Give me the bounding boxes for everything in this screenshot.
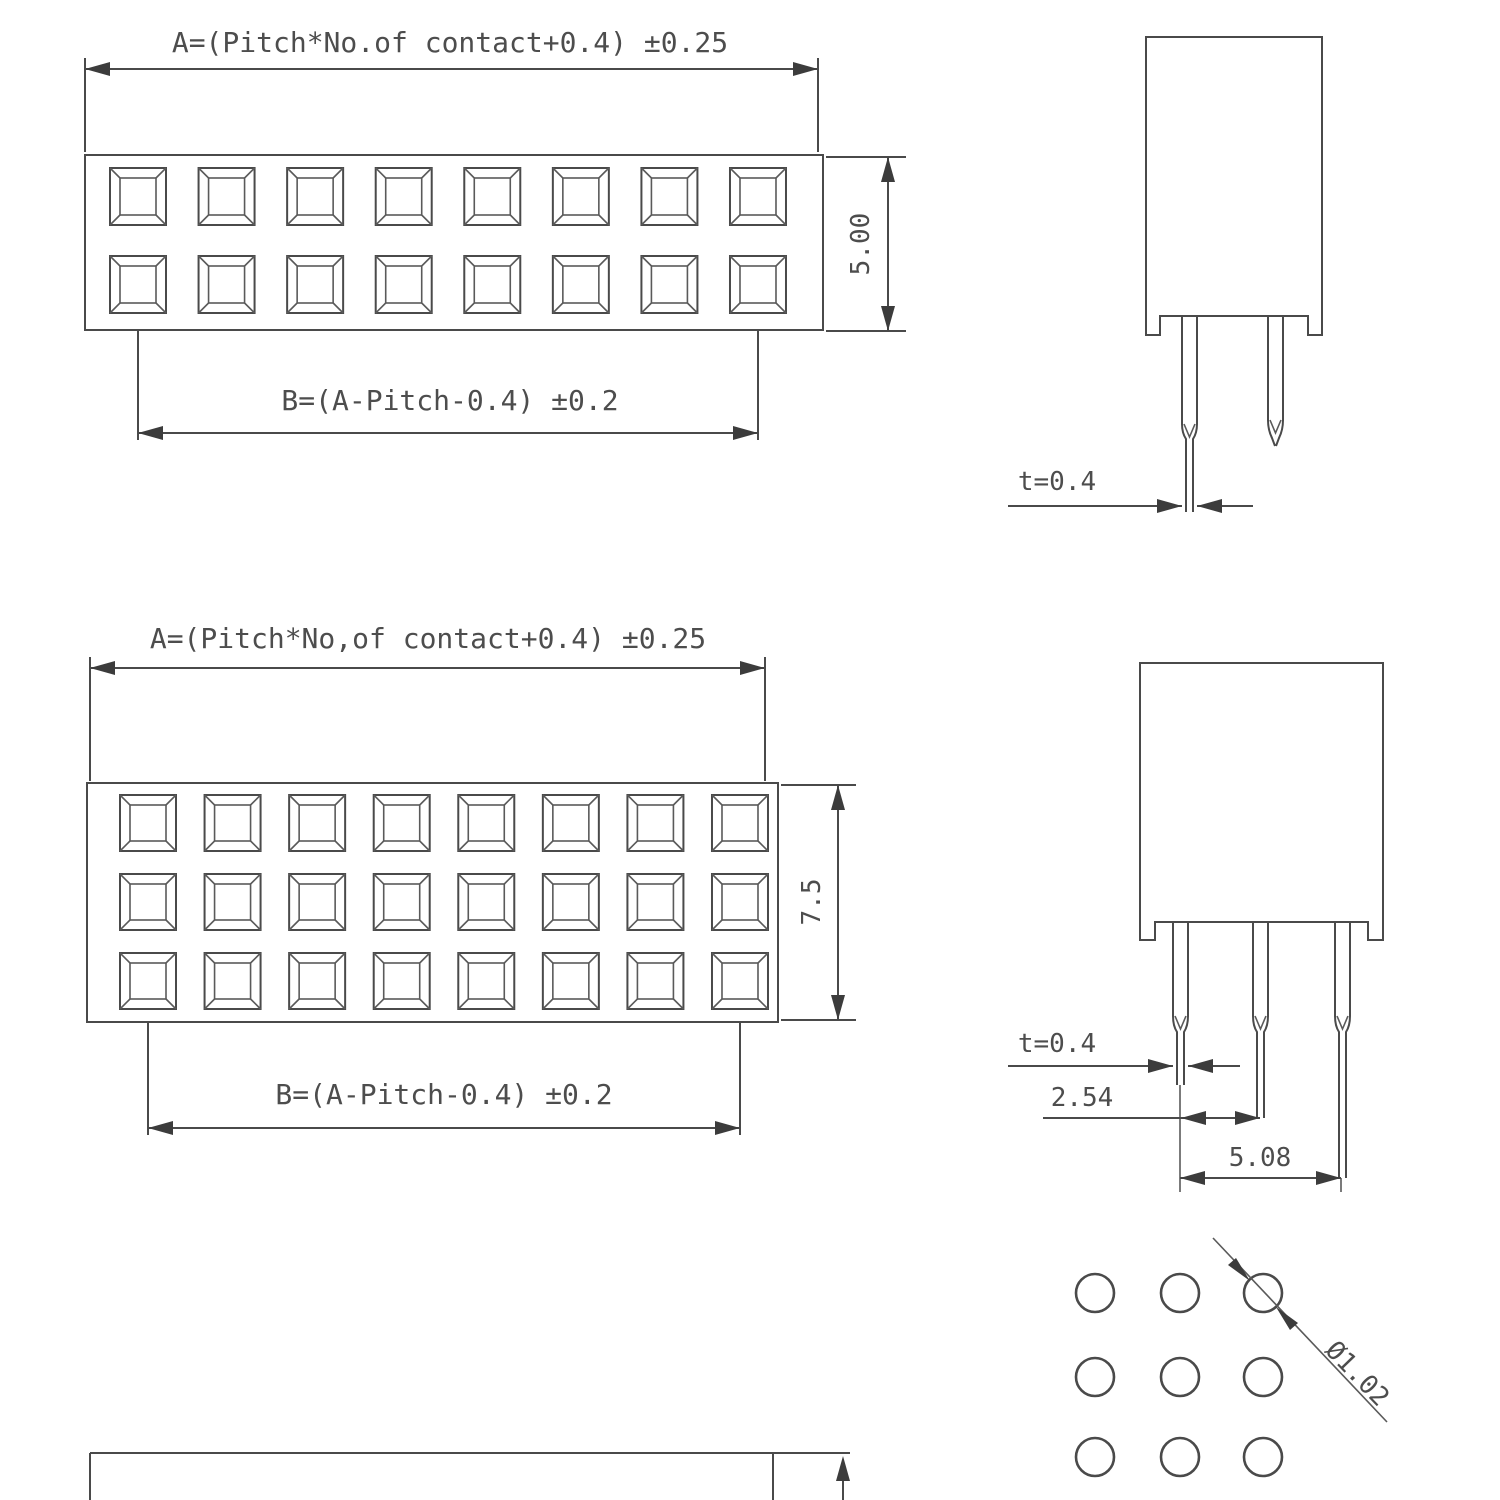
socket-bevel	[458, 999, 468, 1009]
socket-bevel	[627, 999, 637, 1009]
socket-bevel	[120, 953, 130, 963]
pin-group	[1173, 922, 1350, 1178]
socket-bevel	[627, 874, 637, 884]
socket-inner	[553, 884, 589, 920]
socket-bevel	[376, 303, 386, 313]
socket-bevel	[199, 303, 209, 313]
socket-bevel	[245, 256, 255, 266]
header-body-2row	[85, 155, 823, 330]
pin	[1268, 316, 1275, 446]
pin	[1184, 922, 1188, 1085]
socket-bevel	[333, 168, 343, 178]
socket-bevel	[687, 168, 697, 178]
pin-tip-mark	[1175, 1016, 1186, 1029]
socket-bevel	[510, 168, 520, 178]
thickness-mid-label: t=0.4	[1018, 1029, 1096, 1059]
pin-tip-mark	[1255, 1016, 1266, 1029]
socket-bevel	[251, 953, 261, 963]
socket-inner	[740, 178, 776, 215]
socket-inner	[722, 805, 758, 841]
socket-bevel	[374, 999, 384, 1009]
socket-inner	[384, 805, 420, 841]
socket-bevel	[333, 303, 343, 313]
socket-bevel	[289, 953, 299, 963]
socket-bevel	[458, 841, 468, 851]
socket-bevel	[420, 874, 430, 884]
socket-inner	[120, 178, 156, 215]
front-view-3row: A=(Pitch*No,of contact+0.4) ±0.25 7.5 B=…	[87, 622, 856, 1135]
socket-bevel	[599, 303, 609, 313]
socket-bevel	[376, 215, 386, 225]
socket-bevel	[335, 795, 345, 805]
socket-bevel	[289, 999, 299, 1009]
socket-bevel	[464, 168, 474, 178]
arrowhead	[1180, 1171, 1205, 1185]
socket-bevel	[205, 841, 215, 851]
socket-bevel	[687, 215, 697, 225]
socket-inner	[474, 266, 510, 303]
socket-bevel	[641, 215, 651, 225]
socket-inner	[215, 884, 251, 920]
socket-bevel	[335, 874, 345, 884]
arrowhead	[1228, 1258, 1250, 1281]
pin	[1173, 922, 1177, 1085]
socket-bevel	[758, 999, 768, 1009]
side-view-3pin: t=0.4 2.54 5.08	[1008, 663, 1383, 1192]
socket-bevel	[420, 999, 430, 1009]
socket-bevel	[758, 874, 768, 884]
socket-bevel	[156, 256, 166, 266]
dim-height-top-label: 5.00	[846, 213, 876, 276]
socket-bevel	[333, 215, 343, 225]
socket-inner	[637, 884, 673, 920]
socket-bevel	[458, 920, 468, 930]
socket-inner	[299, 805, 335, 841]
socket-bevel	[287, 303, 297, 313]
socket-bevel	[730, 303, 740, 313]
socket-bevel	[205, 920, 215, 930]
socket-bevel	[110, 215, 120, 225]
socket-bevel	[287, 215, 297, 225]
socket-inner	[297, 266, 333, 303]
dim-b-mid-label: B=(A-Pitch-0.4) ±0.2	[275, 1078, 612, 1111]
pin	[1335, 922, 1339, 1178]
socket-bevel	[510, 256, 520, 266]
socket-bevel	[776, 303, 786, 313]
socket-bevel	[374, 920, 384, 930]
socket-inner	[722, 963, 758, 999]
socket-inner	[386, 266, 422, 303]
socket-bevel	[199, 168, 209, 178]
socket-bevel	[458, 795, 468, 805]
socket-bevel	[543, 920, 553, 930]
side-body-outline	[1140, 663, 1383, 940]
pin-tip-mark	[1270, 420, 1281, 433]
arrowhead	[831, 785, 845, 810]
socket-bevel	[599, 168, 609, 178]
socket-bevel	[712, 874, 722, 884]
dim-height-mid-label: 7.5	[797, 879, 827, 926]
dual-pitch-dim-label: 5.08	[1229, 1143, 1292, 1173]
side-view-2pin: t=0.4	[1008, 37, 1322, 513]
socket-bevel	[464, 256, 474, 266]
socket-inner	[130, 963, 166, 999]
pin	[1346, 922, 1350, 1178]
socket-bevel	[251, 841, 261, 851]
socket-bevel	[589, 874, 599, 884]
thickness-top-label: t=0.4	[1018, 467, 1096, 497]
pin-hole	[1076, 1358, 1114, 1396]
socket-bevel	[251, 795, 261, 805]
socket-bevel	[205, 999, 215, 1009]
socket-bevel	[156, 303, 166, 313]
pin-hole	[1244, 1438, 1282, 1476]
arrowhead	[1188, 1059, 1213, 1073]
socket-bevel	[110, 303, 120, 313]
socket-bevel	[420, 795, 430, 805]
socket-bevel	[589, 999, 599, 1009]
pin-hole	[1076, 1274, 1114, 1312]
socket-inner	[384, 963, 420, 999]
socket-bevel	[687, 256, 697, 266]
socket-bevel	[156, 168, 166, 178]
socket-bevel	[251, 920, 261, 930]
socket-bevel	[504, 953, 514, 963]
socket-bevel	[553, 168, 563, 178]
socket-bevel	[730, 256, 740, 266]
pin	[1182, 316, 1186, 512]
arrowhead	[1316, 1171, 1341, 1185]
arrowhead	[90, 661, 115, 675]
socket-bevel	[776, 256, 786, 266]
pin-hole	[1161, 1438, 1199, 1476]
socket-bevel	[712, 795, 722, 805]
socket-bevel	[712, 841, 722, 851]
socket-bevel	[687, 303, 697, 313]
socket-bevel	[458, 953, 468, 963]
socket-bevel	[673, 874, 683, 884]
socket-bevel	[166, 953, 176, 963]
socket-inner	[130, 884, 166, 920]
pin-hole	[1161, 1274, 1199, 1312]
socket-inner	[553, 963, 589, 999]
socket-inner	[637, 963, 673, 999]
connector-dimension-drawing: A=(Pitch*No.of contact+0.4) ±0.25 5.00 B…	[0, 0, 1500, 1500]
socket-bevel	[374, 874, 384, 884]
socket-bevel	[543, 841, 553, 851]
socket-inner	[722, 884, 758, 920]
socket-bevel	[422, 256, 432, 266]
arrowhead	[1197, 499, 1222, 513]
dim-a-mid-label: A=(Pitch*No,of contact+0.4) ±0.25	[150, 622, 706, 655]
socket-bevel	[553, 303, 563, 313]
pin	[1193, 316, 1197, 512]
front-view-2row: A=(Pitch*No.of contact+0.4) ±0.25 5.00 B…	[85, 26, 906, 440]
socket-bevel	[758, 953, 768, 963]
socket-bevel	[205, 953, 215, 963]
arrowhead	[831, 995, 845, 1020]
socket-bevel	[712, 920, 722, 930]
socket-inner	[468, 884, 504, 920]
socket-bevel	[420, 920, 430, 930]
arrowhead	[836, 1456, 850, 1481]
socket-bevel	[758, 795, 768, 805]
socket-bevel	[504, 920, 514, 930]
arrowhead	[148, 1121, 173, 1135]
socket-bevel	[673, 953, 683, 963]
socket-bevel	[504, 874, 514, 884]
socket-bevel	[166, 874, 176, 884]
socket-bevel	[289, 795, 299, 805]
socket-bevel	[758, 841, 768, 851]
socket-bevel	[333, 256, 343, 266]
socket-inner	[468, 805, 504, 841]
arrowhead	[740, 661, 765, 675]
socket-bevel	[120, 920, 130, 930]
socket-bevel	[376, 256, 386, 266]
socket-bevel	[287, 168, 297, 178]
socket-bevel	[627, 953, 637, 963]
socket-bevel	[673, 841, 683, 851]
pin-tip-mark	[1337, 1016, 1348, 1029]
socket-bevel	[589, 920, 599, 930]
socket-bevel	[627, 920, 637, 930]
socket-bevel	[543, 874, 553, 884]
arrowhead	[881, 157, 895, 182]
socket-bevel	[166, 795, 176, 805]
socket-inner	[215, 963, 251, 999]
socket-bevel	[599, 256, 609, 266]
socket-bevel	[166, 920, 176, 930]
socket-bevel	[289, 920, 299, 930]
hole-pattern: Ø1.02	[1076, 1238, 1395, 1476]
socket-bevel	[599, 215, 609, 225]
socket-bevel	[543, 795, 553, 805]
socket-inner	[299, 884, 335, 920]
socket-bevel	[120, 795, 130, 805]
socket-bevel	[166, 841, 176, 851]
socket-bevel	[251, 999, 261, 1009]
socket-bevel	[504, 795, 514, 805]
socket-inner	[563, 266, 599, 303]
socket-bevel	[464, 215, 474, 225]
socket-inner	[651, 178, 687, 215]
socket-bevel	[458, 874, 468, 884]
socket-bevel	[758, 920, 768, 930]
socket-bevel	[543, 999, 553, 1009]
socket-grid-2x8	[110, 168, 786, 313]
pin-hole	[1244, 1274, 1282, 1312]
arrowhead	[793, 62, 818, 76]
socket-grid-3x8	[120, 795, 768, 1009]
socket-bevel	[730, 215, 740, 225]
socket-bevel	[553, 256, 563, 266]
socket-bevel	[205, 795, 215, 805]
socket-bevel	[641, 303, 651, 313]
socket-bevel	[110, 168, 120, 178]
pitch-dim-label: 2.54	[1051, 1083, 1114, 1113]
socket-bevel	[673, 795, 683, 805]
socket-bevel	[287, 256, 297, 266]
socket-bevel	[251, 874, 261, 884]
socket-bevel	[245, 303, 255, 313]
socket-bevel	[627, 795, 637, 805]
socket-bevel	[712, 953, 722, 963]
socket-bevel	[289, 874, 299, 884]
socket-bevel	[776, 168, 786, 178]
socket-bevel	[589, 841, 599, 851]
socket-bevel	[289, 841, 299, 851]
socket-inner	[386, 178, 422, 215]
header-body-3row	[87, 783, 778, 1022]
arrowhead	[733, 426, 758, 440]
socket-bevel	[335, 953, 345, 963]
socket-inner	[563, 178, 599, 215]
socket-bevel	[422, 168, 432, 178]
socket-bevel	[374, 953, 384, 963]
hole-diameter-label: Ø1.02	[1319, 1335, 1395, 1412]
socket-bevel	[504, 999, 514, 1009]
socket-inner	[651, 266, 687, 303]
pin	[1276, 316, 1283, 446]
pin-tip-mark	[1184, 424, 1195, 437]
hole-grid	[1076, 1274, 1282, 1476]
partial-bottom-view	[90, 1453, 850, 1500]
pin-hole	[1076, 1438, 1114, 1476]
socket-bevel	[712, 999, 722, 1009]
dim-b-top-label: B=(A-Pitch-0.4) ±0.2	[281, 384, 618, 417]
socket-inner	[299, 963, 335, 999]
socket-bevel	[553, 215, 563, 225]
arrowhead	[881, 306, 895, 331]
socket-bevel	[420, 841, 430, 851]
arrowhead	[1157, 499, 1182, 513]
socket-bevel	[510, 303, 520, 313]
socket-bevel	[464, 303, 474, 313]
socket-bevel	[110, 256, 120, 266]
arrowhead	[138, 426, 163, 440]
socket-inner	[468, 963, 504, 999]
arrowhead	[1148, 1059, 1173, 1073]
socket-bevel	[641, 168, 651, 178]
socket-inner	[215, 805, 251, 841]
socket-bevel	[776, 215, 786, 225]
socket-bevel	[673, 999, 683, 1009]
socket-inner	[553, 805, 589, 841]
socket-bevel	[422, 303, 432, 313]
socket-bevel	[199, 256, 209, 266]
socket-bevel	[374, 841, 384, 851]
pin-hole	[1244, 1358, 1282, 1396]
arrowhead	[1181, 1111, 1206, 1125]
arrowhead	[715, 1121, 740, 1135]
side-body-outline	[1146, 37, 1322, 335]
socket-bevel	[730, 168, 740, 178]
socket-bevel	[120, 841, 130, 851]
socket-bevel	[510, 215, 520, 225]
socket-bevel	[673, 920, 683, 930]
drawing-sheet: A=(Pitch*No.of contact+0.4) ±0.25 5.00 B…	[0, 0, 1500, 1500]
socket-inner	[120, 266, 156, 303]
socket-bevel	[120, 999, 130, 1009]
socket-bevel	[205, 874, 215, 884]
socket-inner	[474, 178, 510, 215]
socket-bevel	[376, 168, 386, 178]
socket-bevel	[166, 999, 176, 1009]
socket-inner	[209, 178, 245, 215]
socket-inner	[130, 805, 166, 841]
socket-bevel	[589, 953, 599, 963]
socket-bevel	[335, 841, 345, 851]
socket-inner	[209, 266, 245, 303]
socket-inner	[384, 884, 420, 920]
pin-hole	[1161, 1358, 1199, 1396]
socket-bevel	[245, 215, 255, 225]
socket-bevel	[245, 168, 255, 178]
socket-bevel	[543, 953, 553, 963]
socket-bevel	[120, 874, 130, 884]
dim-a-top-label: A=(Pitch*No.of contact+0.4) ±0.25	[172, 26, 728, 59]
socket-bevel	[641, 256, 651, 266]
socket-bevel	[420, 953, 430, 963]
socket-bevel	[335, 999, 345, 1009]
socket-inner	[637, 805, 673, 841]
socket-inner	[297, 178, 333, 215]
socket-inner	[740, 266, 776, 303]
socket-bevel	[589, 795, 599, 805]
socket-bevel	[504, 841, 514, 851]
socket-bevel	[374, 795, 384, 805]
arrowhead	[1276, 1307, 1298, 1330]
socket-bevel	[156, 215, 166, 225]
socket-bevel	[335, 920, 345, 930]
arrowhead	[85, 62, 110, 76]
socket-bevel	[422, 215, 432, 225]
socket-bevel	[199, 215, 209, 225]
socket-bevel	[627, 841, 637, 851]
